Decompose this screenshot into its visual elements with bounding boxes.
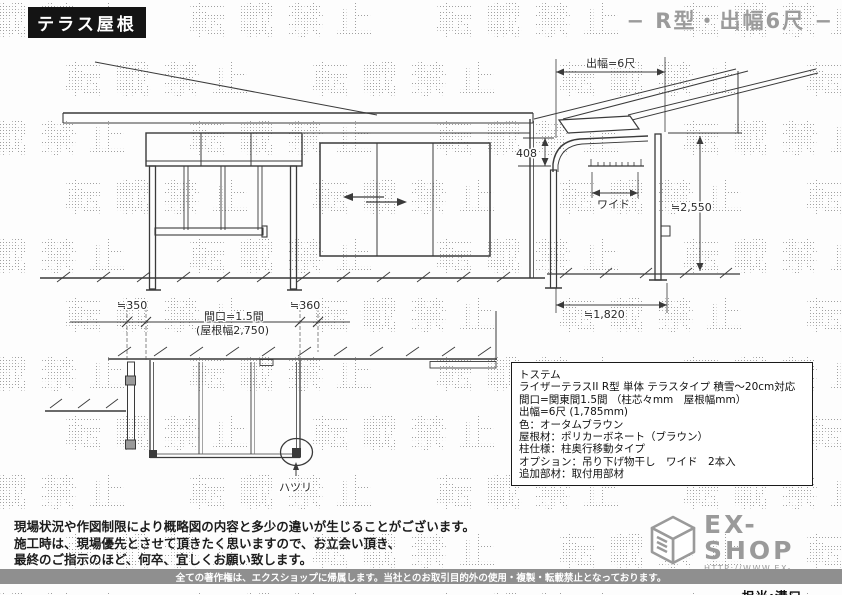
dim-350-label: ≒350 (117, 299, 147, 312)
dim-height-label: ≒2,550 (671, 201, 712, 214)
dim-width-label-1: 間口=1.5間 (204, 310, 264, 323)
document-page: 転載禁止転載禁止転載禁止転載禁止転載禁止転載禁止転載禁止転載禁止転載禁止転載禁止… (0, 0, 842, 595)
spec-line: トステム (519, 369, 805, 381)
spec-line: 出幅=6尺 (1,785mm) (519, 406, 805, 418)
dim-width-label-2: (屋根幅2,750) (196, 323, 269, 337)
exshop-logo: EX-SHOP HTTP://WWW.EX-SHOP.NET 担当:溝口 (648, 512, 840, 570)
spec-line: 屋根材：ポリカーボネート（ブラウン） (519, 431, 805, 443)
spec-line: 追加部材：取付用部材 (519, 468, 805, 480)
disclaimer-line: 施工時は、現場優先とさせて頂きたく思いますので、お立会い頂き、 (14, 536, 454, 553)
dim-360-label: ≒360 (290, 299, 320, 312)
footer-bar: 全ての著作権は、エクスショップに帰属します。当社とのお取引目的外の使用・複製・転… (0, 569, 842, 584)
logo-brand: EX-SHOP (704, 512, 840, 564)
spec-line: 色：オータムブラウン (519, 419, 805, 431)
dim-408-label: 408 (516, 147, 537, 160)
copyright-text: 全ての著作権は、エクスショップに帰属します。当社とのお取引目的外の使用・複製・転… (176, 570, 667, 584)
technical-drawing: 出幅=6尺 408 ワイド ≒2,550 ≒1,820 ≒350 ≒360 間口… (0, 0, 842, 595)
spec-line: ライザーテラスII R型 単体 テラスタイプ 積雪〜20cm対応 (519, 381, 805, 393)
dim-wide-label: ワイド (597, 198, 630, 211)
logo-contact: 担当:溝口 (704, 586, 840, 595)
spec-line: 柱仕様：柱奥行移動タイプ (519, 443, 805, 455)
disclaimer: 現場状況や作図制限により概略図の内容と多少の違いが生じることがございます。 施工… (14, 519, 454, 569)
dim-depth-label: 出幅=6尺 (586, 56, 635, 70)
disclaimer-line: 現場状況や作図制限により概略図の内容と多少の違いが生じることがございます。 (14, 519, 454, 536)
spec-line: オプション：吊り下げ物干し ワイド 2本入 (519, 456, 805, 468)
disclaimer-line: 最終のご指示のほど、何卒、宜しくお願い致します。 (14, 552, 454, 569)
dim-1820-label: ≒1,820 (584, 308, 625, 321)
spec-line: 間口=関東間1.5間 （柱芯々mm 屋根幅mm） (519, 394, 805, 406)
page-title: − R型・出幅6尺 − (626, 5, 834, 35)
spec-box: トステム ライザーテラスII R型 単体 テラスタイプ 積雪〜20cm対応 間口… (511, 362, 813, 486)
category-label: テラス屋根 (28, 7, 146, 38)
hatsuri-label: ハツリ (279, 481, 312, 494)
cube-icon (648, 514, 698, 568)
